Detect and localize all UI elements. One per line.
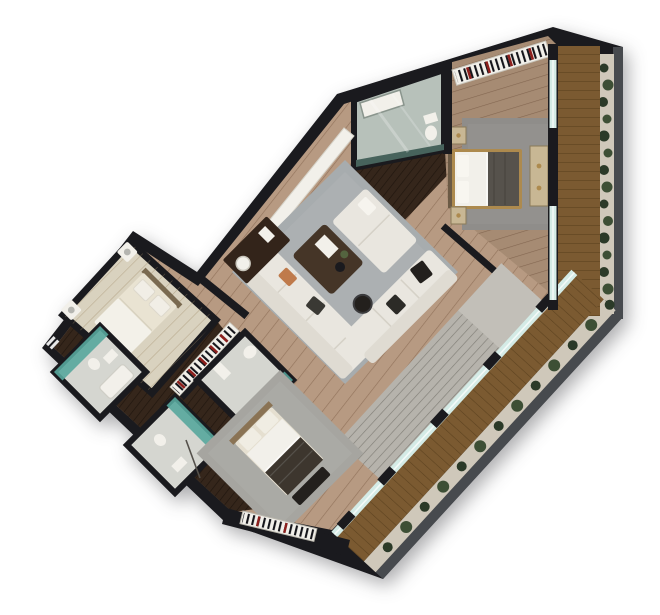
window-wall-right: [548, 44, 558, 310]
nightstand: [451, 207, 466, 224]
floor-plan-svg: [0, 0, 660, 615]
toilet: [425, 126, 437, 141]
nightstand: [451, 127, 466, 144]
master-bed: [448, 149, 522, 209]
balcony-right: [556, 46, 600, 316]
floor-plan-canvas: [0, 0, 660, 615]
dresser: [530, 146, 548, 206]
planter-strip-right: [598, 54, 614, 314]
parapet-right: [613, 47, 623, 319]
